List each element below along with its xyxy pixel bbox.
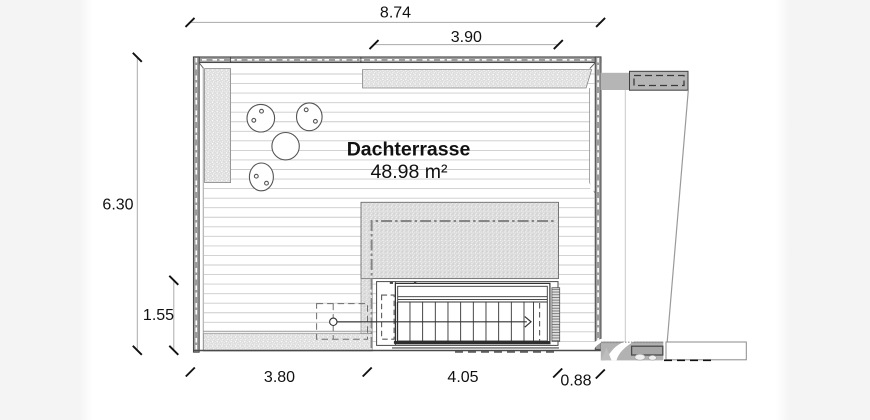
svg-text:8.74: 8.74 [380,5,411,22]
svg-text:6.30: 6.30 [102,197,133,214]
svg-text:4.05: 4.05 [447,369,478,386]
svg-text:3.90: 3.90 [451,29,482,46]
svg-text:48.98 m²: 48.98 m² [371,161,448,183]
svg-text:Dachterrasse: Dachterrasse [347,139,471,161]
svg-text:0.88: 0.88 [560,373,591,390]
svg-text:1.55: 1.55 [143,307,174,324]
svg-text:3.80: 3.80 [264,369,295,386]
